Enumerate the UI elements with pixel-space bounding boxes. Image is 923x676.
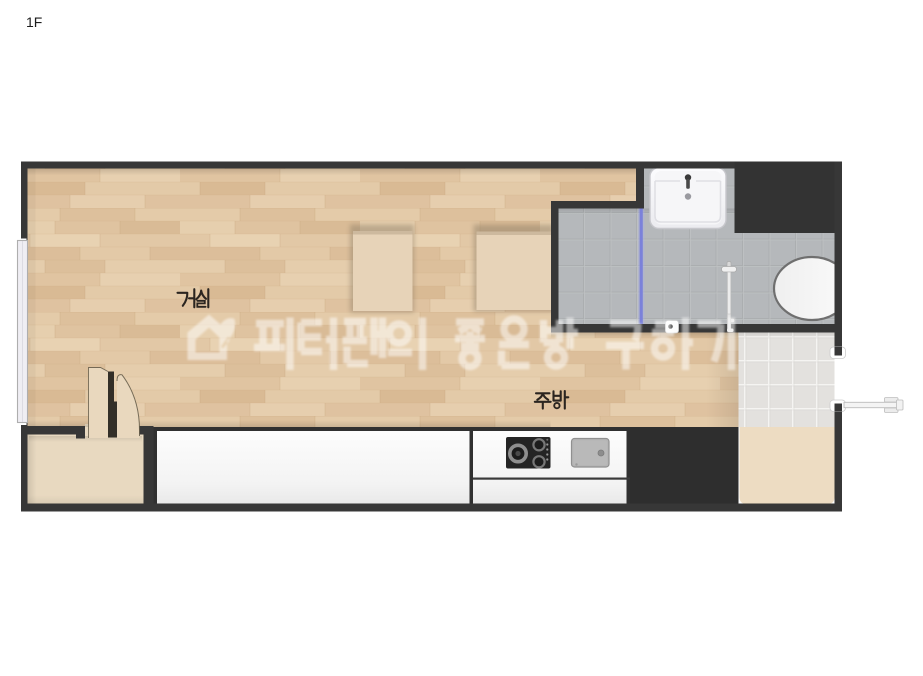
svg-text:1F: 1F: [26, 14, 42, 30]
